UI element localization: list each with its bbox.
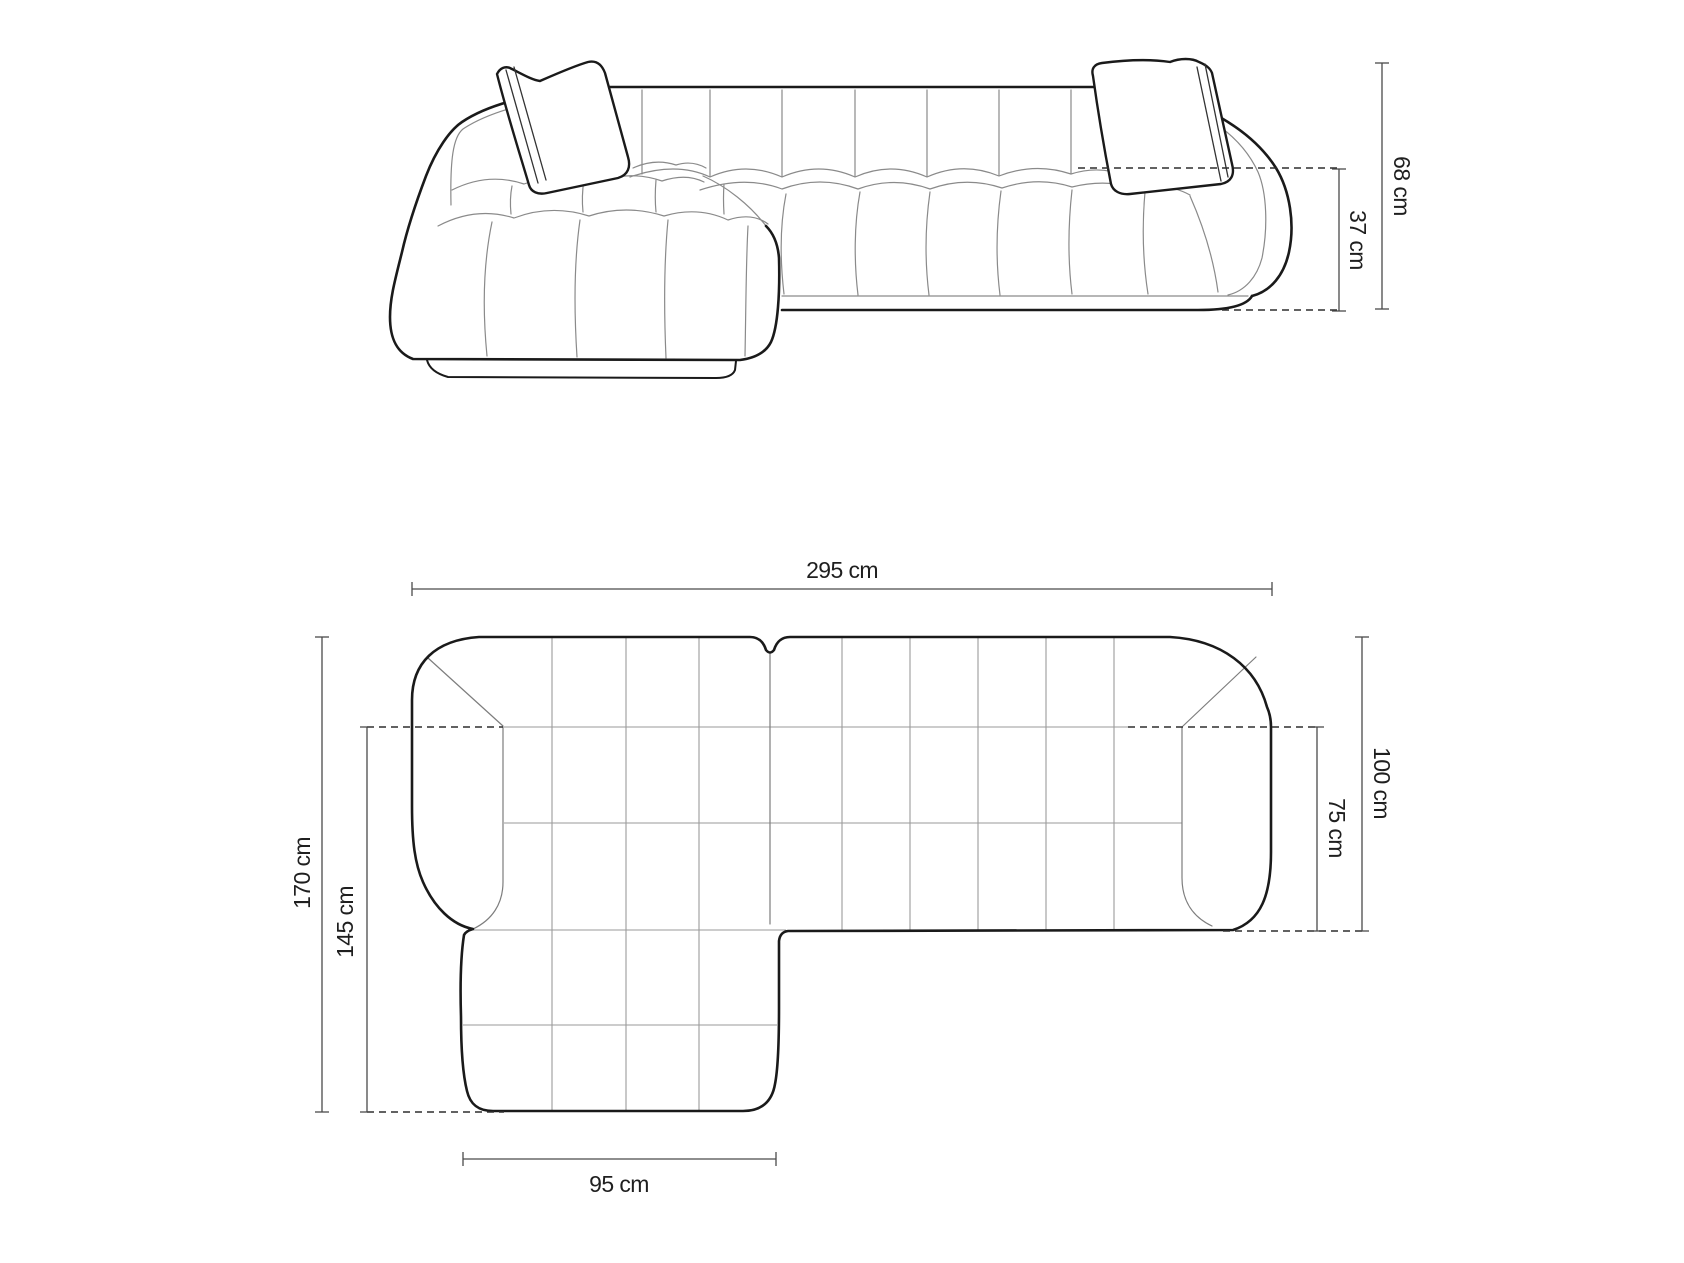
dim-chaise-length: 170 cm — [289, 637, 329, 1112]
right-back-pillow — [1092, 59, 1233, 194]
dim-chaise-inner-length: 145 cm — [332, 727, 374, 1112]
dim-seat-depth: 75 cm — [1310, 727, 1350, 931]
dim-label-seat-height: 37 cm — [1345, 210, 1371, 270]
dim-label-total-height: 68 cm — [1389, 156, 1415, 216]
dim-label-total-width: 295 cm — [806, 557, 878, 583]
top-plan-view: 295 cm 170 cm 145 cm 100 cm — [289, 557, 1395, 1197]
diagram-svg: 37 cm 68 cm — [0, 0, 1684, 1263]
dim-label-chaise-length: 170 cm — [289, 837, 315, 909]
dim-seat-height: 37 cm — [1332, 169, 1371, 311]
dim-label-chaise-width: 95 cm — [589, 1171, 649, 1197]
dim-label-seat-depth: 75 cm — [1324, 798, 1350, 858]
dim-total-depth: 100 cm — [1355, 637, 1395, 931]
dim-chaise-width: 95 cm — [463, 1152, 776, 1197]
sofa-dimension-diagram: 37 cm 68 cm — [0, 0, 1684, 1263]
dim-label-total-depth: 100 cm — [1369, 747, 1395, 819]
dim-total-height: 68 cm — [1375, 63, 1415, 309]
dim-label-chaise-inner-length: 145 cm — [332, 886, 358, 958]
front-elevation-view: 37 cm 68 cm — [390, 59, 1415, 378]
plan-quilting-grid — [463, 638, 1182, 1110]
left-back-pillow — [497, 62, 629, 194]
dim-total-width: 295 cm — [412, 557, 1272, 596]
